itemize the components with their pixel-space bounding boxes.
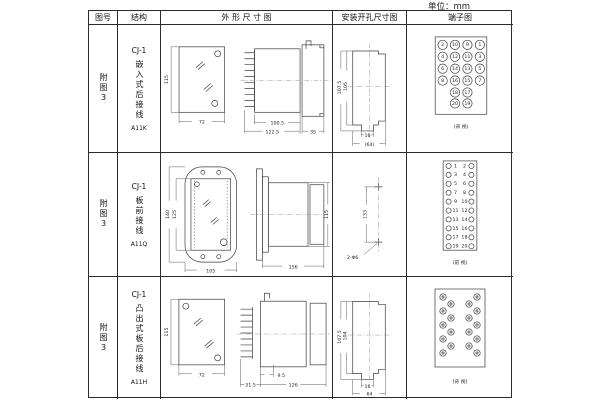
header-structure: 结构 [118, 11, 161, 25]
dim-115: 115 [164, 327, 170, 336]
terminal-number: 1 [478, 42, 481, 48]
terminal-pin [442, 338, 444, 340]
structure-code: A11K [131, 125, 147, 132]
a11q-mounting-drawing: 133 2-Φ6 [333, 153, 406, 276]
terminal-pin [450, 317, 452, 319]
terminal-number: 6 [463, 181, 466, 187]
a11h-terminal-view-label: (背 视) [453, 378, 468, 385]
a11h-front-dims: 115 72 [164, 299, 225, 378]
terminal-pin [469, 217, 474, 222]
dim-122-5: 122.5 [265, 129, 279, 135]
terminal-number: 13 [464, 66, 470, 72]
terminal-number: 8 [463, 190, 466, 196]
terminal-number: 11 [464, 54, 470, 60]
terminal-pin [468, 345, 470, 347]
row1-structure: CJ-1 嵌入式后接线 A11K [118, 25, 161, 153]
terminal-pin [476, 310, 478, 312]
header-mounting: 安装开孔尺寸图 [333, 11, 407, 25]
dim-107-5: 107.5 [337, 330, 343, 344]
a11k-outline-drawing: 115 72 100.5 122.5 [161, 25, 332, 152]
structure-desc: 嵌入式后接线 [135, 60, 143, 120]
terminal-number: 10 [461, 199, 467, 205]
terminal-pin [442, 296, 444, 298]
terminal-pin [442, 352, 444, 354]
terminal-number: 15 [453, 226, 459, 232]
terminal-pin [446, 208, 451, 213]
dim-31-5: 31.5 [245, 383, 256, 389]
row1-mounting-cell: 107.5 105 16 (64) [333, 25, 407, 153]
terminal-pin [442, 310, 444, 312]
terminal-pin [440, 322, 446, 328]
terminal-pin [476, 296, 478, 298]
terminal-number: 2 [463, 163, 466, 169]
structure-model: CJ-1 [132, 46, 147, 55]
a11k-front-dims: 115 72 [164, 47, 225, 126]
row3-outline-cell: 115 72 9.5 31.5 126 [161, 277, 333, 399]
a11h-terminal-pins [440, 294, 480, 356]
terminal-number: 19 [453, 244, 459, 250]
terminal-pin [440, 294, 446, 300]
terminal-number: 20 [452, 101, 458, 107]
terminal-pin [446, 199, 451, 204]
a11k-cutout [348, 43, 391, 138]
row2-outline-cell: 140 125 105 156 115 [161, 153, 333, 277]
terminal-number: 11 [453, 208, 459, 214]
a11q-front-dims: 140 125 105 [165, 167, 236, 274]
terminal-pin [446, 172, 451, 177]
dim-115: 115 [324, 210, 330, 219]
dim-133: 133 [363, 210, 369, 219]
spec-table: 图号 结构 外 形 尺 寸 图 安装开孔尺寸图 端子图 附图3 CJ-1 嵌入式… [88, 10, 512, 398]
terminal-pin [440, 308, 446, 314]
terminal-pin [446, 190, 451, 195]
fig-no-label: 附图3 [99, 323, 107, 354]
terminal-pin [474, 308, 480, 314]
dim-125: 125 [172, 210, 178, 219]
terminal-number: 6 [441, 66, 444, 72]
terminal-pin [476, 324, 478, 326]
row2-terminal-cell: 1357911131517192468101214161820 (前 视) [407, 153, 513, 277]
terminal-number: 3 [454, 172, 457, 178]
terminal-pin [469, 172, 474, 177]
dim-107-5: 107.5 [337, 81, 343, 95]
a11q-terminal-pins: 1357911131517192468101214161820 [446, 163, 474, 249]
row2-structure: CJ-1 板前接线 A11Q [118, 153, 161, 277]
row2-fig-no: 附图3 [89, 153, 118, 277]
terminal-number: 12 [452, 54, 458, 60]
row2-mounting-cell: 133 2-Φ6 [333, 153, 407, 277]
dim-156: 156 [289, 264, 298, 270]
terminal-pin [466, 315, 472, 321]
terminal-number: 14 [452, 66, 458, 72]
datasheet-page: 单位：mm 图号 结构 外 形 尺 寸 图 安装开孔尺寸图 端子图 附图3 CJ… [0, 0, 600, 400]
terminal-pin [469, 235, 474, 240]
terminal-pin [448, 301, 454, 307]
dim-104: 104 [342, 332, 348, 341]
header-fig-no-label: 图号 [95, 12, 111, 23]
a11h-front-view [179, 299, 225, 365]
terminal-pin [474, 294, 480, 300]
a11k-terminal-drawing: 2109141211361413581615718172019 (背 视) [407, 25, 513, 152]
a11h-cutout-dims: 107.5 104 16 64 [337, 302, 385, 398]
a11h-side-view [237, 293, 330, 367]
terminal-number: 17 [453, 235, 459, 241]
terminal-pin [474, 336, 480, 342]
hole-callout: 2-Φ6 [347, 255, 358, 261]
a11k-terminal-view-label: (背 视) [454, 123, 469, 130]
a11q-terminal-view-label: (前 视) [453, 259, 468, 266]
terminal-number: 10 [452, 42, 458, 48]
terminal-number: 19 [464, 101, 470, 107]
dim-105: 105 [343, 82, 349, 91]
header-mounting-label: 安装开孔尺寸图 [342, 12, 398, 23]
terminal-number: 4 [463, 172, 466, 178]
terminal-pin [440, 350, 446, 356]
terminal-number: 5 [478, 66, 481, 72]
dim-100-5: 100.5 [270, 121, 284, 127]
terminal-pin [448, 329, 454, 335]
terminal-number: 18 [461, 235, 467, 241]
terminal-number: 20 [461, 244, 467, 250]
row1-terminal-cell: 2109141211361413581615718172019 (背 视) [407, 25, 513, 153]
terminal-number: 5 [454, 181, 457, 187]
terminal-pin [469, 190, 474, 195]
terminal-pin [469, 163, 474, 168]
row3-terminal-cell: (背 视) [407, 277, 513, 399]
a11h-side-dims: 9.5 31.5 126 [241, 359, 327, 389]
terminal-pin [468, 303, 470, 305]
terminal-number: 8 [441, 78, 444, 84]
a11h-outline-drawing: 115 72 9.5 31.5 126 [161, 277, 332, 399]
structure-code: A11H [131, 379, 147, 386]
a11q-front-view [185, 167, 237, 262]
row1-outline-cell: 115 72 100.5 122.5 [161, 25, 333, 153]
terminal-number: 9 [454, 199, 457, 205]
terminal-pin [469, 208, 474, 213]
terminal-number: 18 [452, 90, 458, 96]
terminal-pin [469, 244, 474, 249]
a11k-front-view [179, 47, 225, 112]
terminal-pin [466, 329, 472, 335]
a11q-terminal-outline [443, 161, 477, 250]
terminal-pin [442, 324, 444, 326]
terminal-number: 4 [441, 54, 444, 60]
header-outline: 外 形 尺 寸 图 [161, 11, 333, 25]
a11h-terminal-drawing: (背 视) [407, 277, 513, 399]
terminal-number: 1 [454, 163, 457, 169]
terminal-pin [474, 322, 480, 328]
structure-model: CJ-1 [132, 290, 147, 299]
terminal-number: 7 [478, 78, 481, 84]
structure-model: CJ-1 [132, 182, 147, 191]
row3-fig-no: 附图3 [89, 277, 118, 399]
a11q-holes [374, 177, 382, 252]
dim-64: (64) [365, 142, 375, 148]
row1-fig-no: 附图3 [89, 25, 118, 153]
terminal-pin [450, 331, 452, 333]
dim-64: 64 [366, 392, 372, 398]
terminal-number: 15 [464, 78, 470, 84]
fig-no-label: 附图3 [99, 73, 107, 104]
terminal-number: 9 [466, 42, 469, 48]
terminal-pin [474, 350, 480, 356]
terminal-pin [446, 181, 451, 186]
terminal-pin [476, 338, 478, 340]
terminal-pin [446, 163, 451, 168]
terminal-pin [468, 331, 470, 333]
a11h-cutout [348, 294, 391, 387]
terminal-number: 17 [464, 90, 470, 96]
a11h-mounting-drawing: 107.5 104 16 64 [333, 277, 406, 399]
terminal-pin [469, 181, 474, 186]
dim-140: 140 [165, 210, 171, 219]
a11q-outline-drawing: 140 125 105 156 115 [161, 153, 332, 276]
terminal-number: 7 [454, 190, 457, 196]
terminal-pin [446, 235, 451, 240]
terminal-pin [468, 317, 470, 319]
terminal-number: 12 [461, 208, 467, 214]
terminal-pin [446, 244, 451, 249]
header-structure-label: 结构 [131, 12, 147, 23]
a11k-cutout-dims: 107.5 105 16 (64) [337, 51, 385, 148]
terminal-number: 14 [461, 217, 467, 223]
dim-126: 126 [289, 383, 298, 389]
a11q-side-dims: 156 115 [262, 183, 329, 271]
terminal-pin [469, 199, 474, 204]
a11k-mounting-drawing: 107.5 105 16 (64) [333, 25, 406, 152]
dim-16: 16 [365, 133, 371, 139]
dim-72: 72 [199, 120, 205, 126]
header-fig-no: 图号 [89, 11, 118, 25]
dim-35: 35 [310, 129, 316, 135]
terminal-pin [448, 343, 454, 349]
a11q-hole-dims: 133 2-Φ6 [347, 187, 377, 261]
terminal-pin [450, 303, 452, 305]
terminal-number: 13 [453, 217, 459, 223]
dim-9-5: 9.5 [277, 373, 285, 379]
terminal-pin [476, 352, 478, 354]
structure-desc: 凸出式板后接线 [135, 304, 143, 374]
structure-desc: 板前接线 [135, 196, 143, 236]
terminal-pin [466, 343, 472, 349]
dim-115: 115 [164, 75, 170, 84]
terminal-number: 16 [452, 78, 458, 84]
a11k-side-dims: 100.5 122.5 35 [245, 110, 324, 135]
terminal-number: 3 [478, 54, 481, 60]
a11k-side-view [241, 41, 330, 116]
terminal-number: 2 [441, 42, 444, 48]
terminal-pin [466, 301, 472, 307]
terminal-pin [448, 315, 454, 321]
terminal-pin [469, 226, 474, 231]
terminal-pin [446, 217, 451, 222]
dim-72: 72 [199, 372, 205, 378]
structure-code: A11Q [131, 241, 147, 248]
dim-16: 16 [365, 384, 371, 390]
a11q-terminal-drawing: 1357911131517192468101214161820 (前 视) [407, 153, 513, 276]
a11k-terminal-pins: 2109141211361413581615718172019 [438, 40, 485, 108]
terminal-number: 16 [461, 226, 467, 232]
row3-structure: CJ-1 凸出式板后接线 A11H [118, 277, 161, 399]
terminal-pin [446, 226, 451, 231]
terminal-pin [450, 345, 452, 347]
row3-mounting-cell: 107.5 104 16 64 [333, 277, 407, 399]
dim-105: 105 [206, 268, 215, 274]
header-outline-label: 外 形 尺 寸 图 [221, 12, 271, 23]
fig-no-label: 附图3 [99, 199, 107, 230]
header-terminal: 端子图 [407, 11, 513, 25]
header-terminal-label: 端子图 [448, 12, 472, 23]
terminal-pin [440, 336, 446, 342]
